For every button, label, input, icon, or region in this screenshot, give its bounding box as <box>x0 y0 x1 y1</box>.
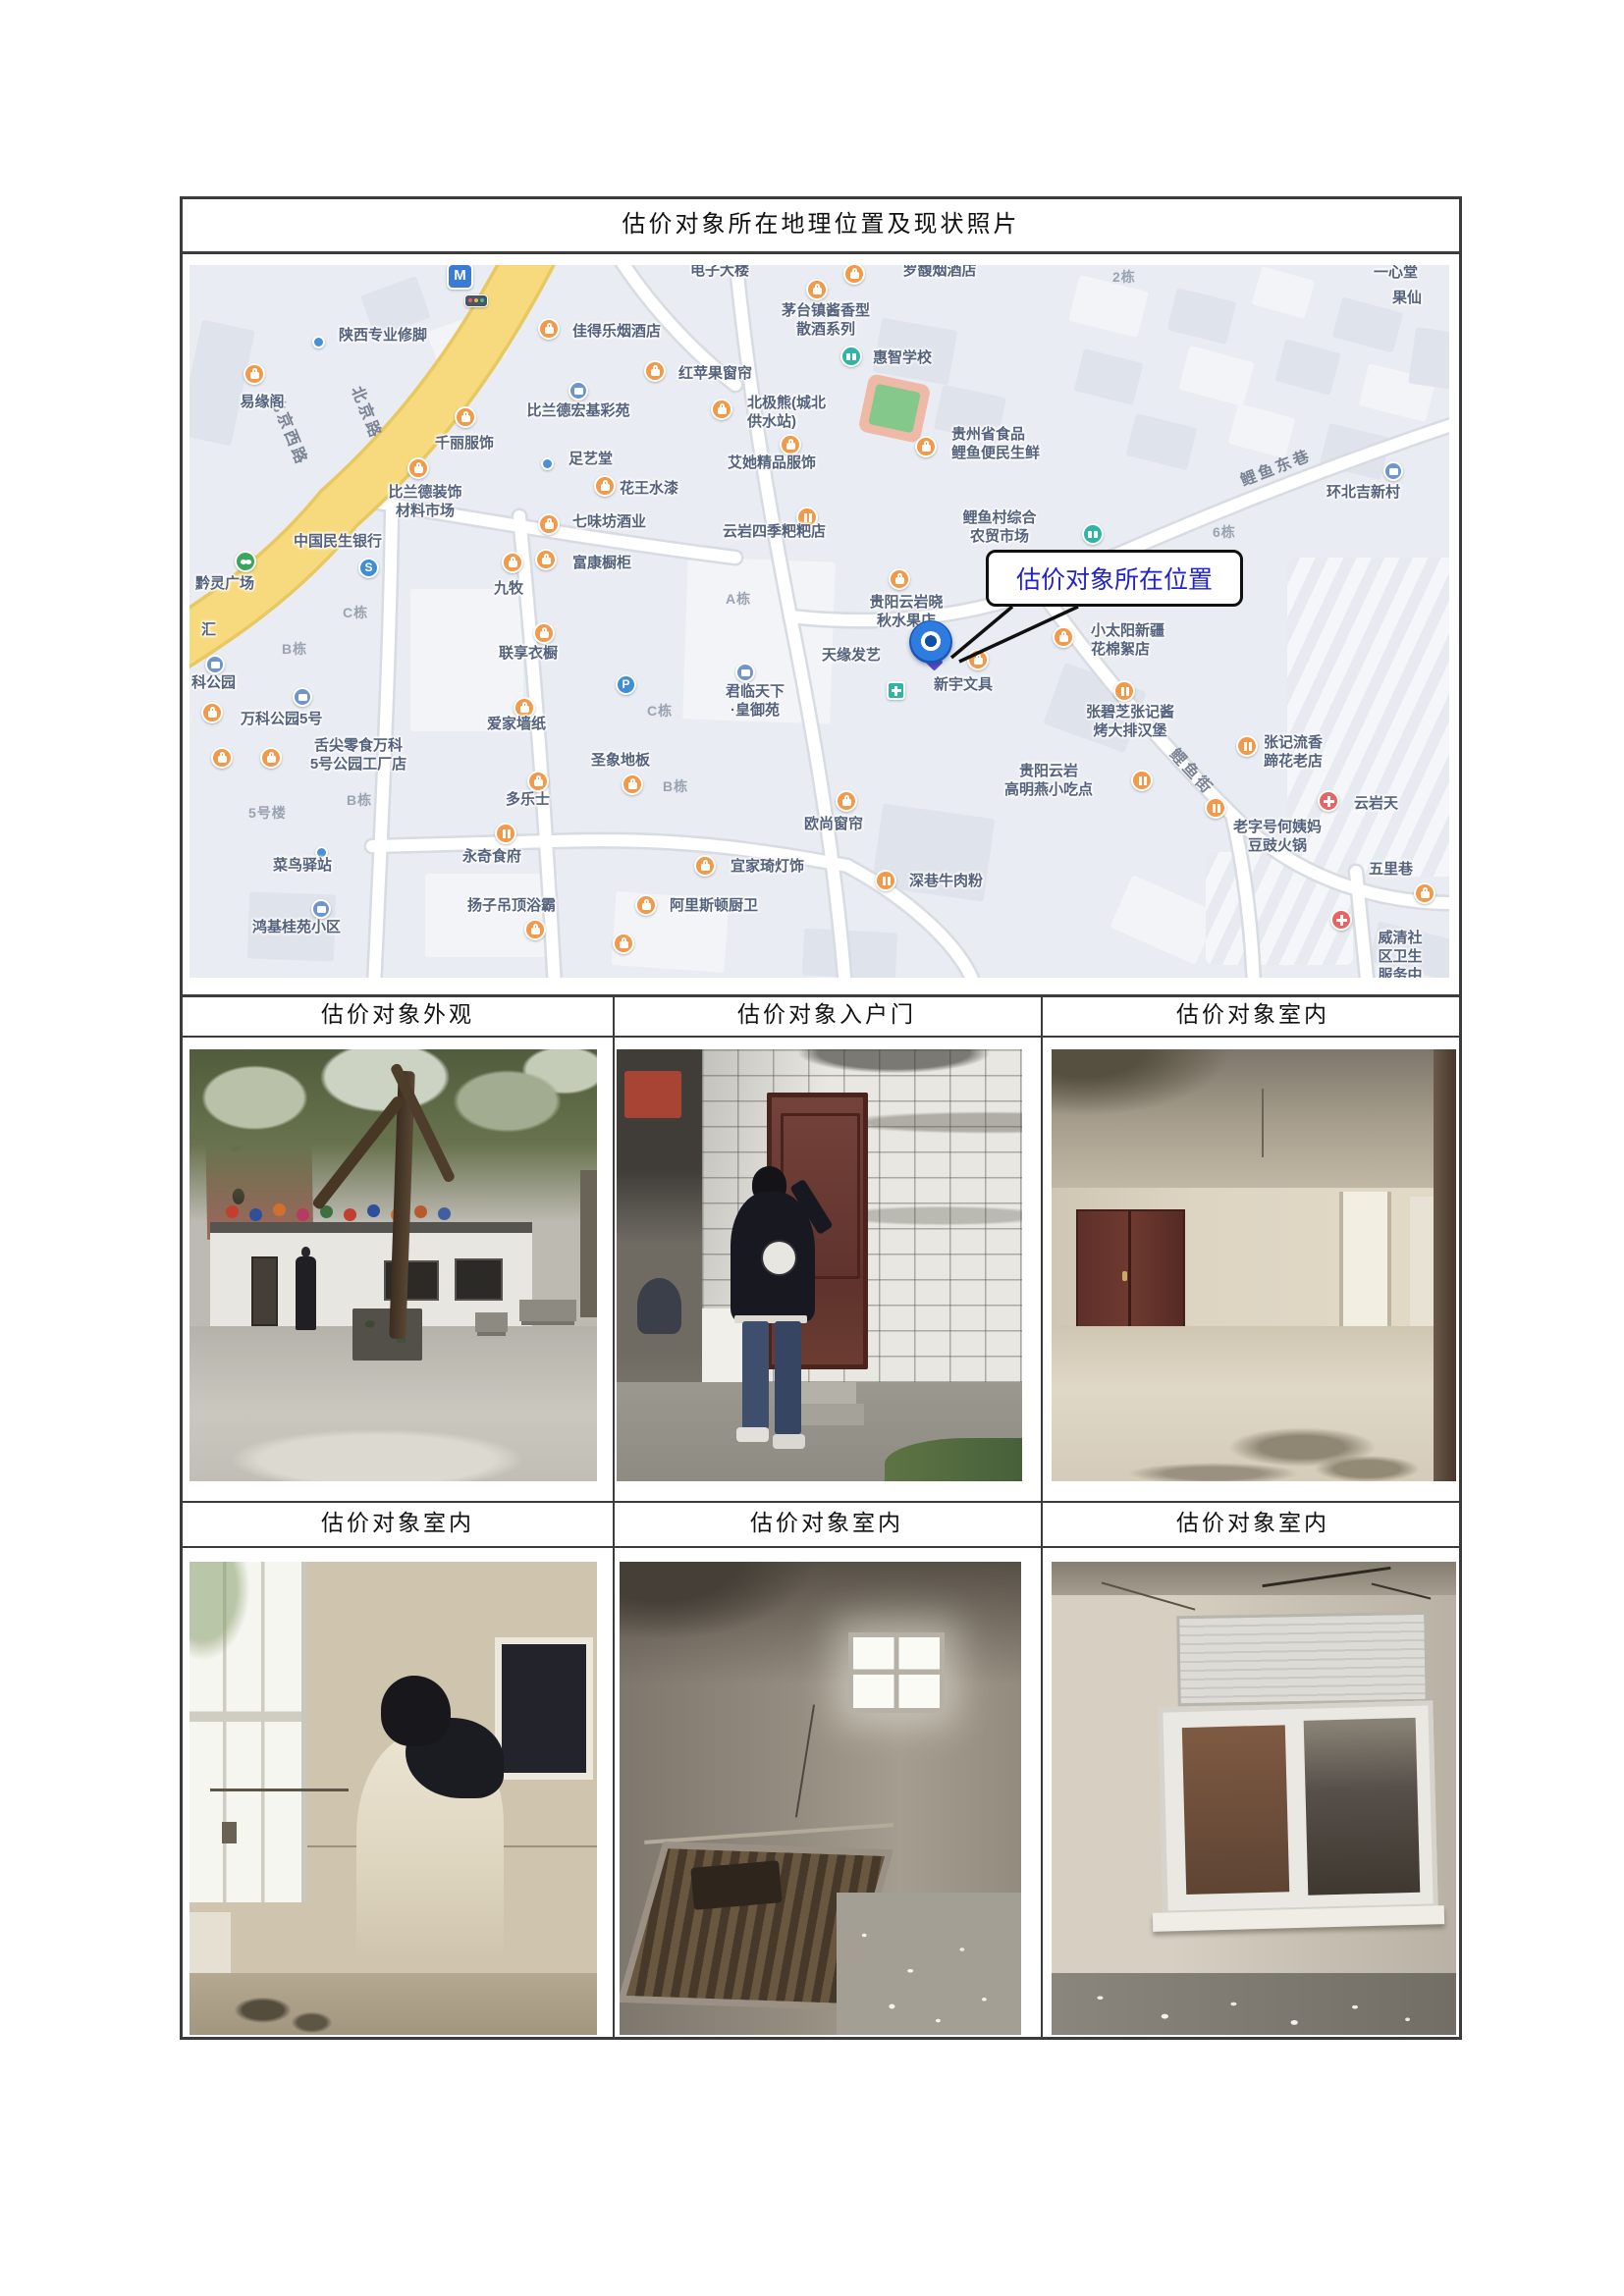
page-title: 估价对象所在地理位置及现状照片 <box>183 199 1459 251</box>
stone-bench <box>519 1300 576 1321</box>
photo-interior-1 <box>1052 1049 1456 1481</box>
ceiling <box>1052 1049 1456 1188</box>
divider <box>613 994 615 2037</box>
red-wardrobe <box>1076 1209 1185 1343</box>
debris-objects <box>690 1861 782 1911</box>
photo-entrance-door <box>617 1049 1022 1481</box>
column-header: 估价对象室内 <box>1041 1501 1465 1546</box>
doorway <box>1410 1197 1436 1326</box>
column-header: 估价对象室内 <box>1041 994 1465 1036</box>
wall-pipe <box>210 1789 349 1791</box>
divider <box>183 251 1459 254</box>
stone-bench <box>475 1312 508 1332</box>
window-pane <box>1304 1718 1420 1896</box>
person-figure <box>296 1256 316 1330</box>
column-header: 估价对象室内 <box>183 1501 613 1546</box>
photo-interior-2 <box>189 1562 597 2035</box>
window <box>1159 1700 1439 1915</box>
divider <box>1041 994 1043 2037</box>
jacket-emblem <box>761 1240 797 1276</box>
column-header: 估价对象外观 <box>183 994 613 1036</box>
photo-table: 估价对象所在地理位置及现状照片 <box>180 196 1462 2040</box>
divider <box>183 1036 1459 1038</box>
dark-ceiling <box>620 1562 1021 1684</box>
floor <box>189 1973 597 2035</box>
window <box>189 1562 307 1902</box>
window-pane <box>1182 1725 1290 1894</box>
small-window <box>848 1632 945 1713</box>
crouching-person <box>637 1278 681 1334</box>
debris-floor <box>837 1893 1021 2035</box>
divider <box>183 1546 1459 1548</box>
person-leg <box>742 1321 769 1429</box>
photo-interior-4 <box>1052 1562 1456 2035</box>
wall-socket <box>222 1822 237 1843</box>
fence <box>580 1170 597 1317</box>
location-map-image: 陕西专业修脚易缘阁佳得乐烟酒店比兰德宏基彩苑千丽服饰比兰德装饰 材料市场足艺堂花… <box>189 265 1449 978</box>
hanging-wire <box>1262 1089 1264 1157</box>
roller-shutter <box>1176 1612 1429 1706</box>
column-header: 估价对象室内 <box>613 1501 1041 1546</box>
tile-floor <box>1052 1326 1456 1481</box>
tree-planter <box>352 1308 422 1361</box>
house-window <box>455 1258 503 1302</box>
person-shoe <box>773 1434 805 1449</box>
photo-exterior <box>189 1049 597 1481</box>
red-object <box>624 1071 681 1118</box>
doorway <box>1339 1192 1392 1325</box>
location-callout: 估价对象所在位置 <box>986 550 1243 607</box>
person-leg <box>775 1321 801 1433</box>
callout-pointer <box>189 265 1449 978</box>
house-door <box>251 1256 277 1326</box>
debris-floor <box>1052 1973 1456 2035</box>
column-header: 估价对象入户门 <box>613 994 1041 1036</box>
person-shoe <box>736 1427 769 1442</box>
photo-interior-3 <box>620 1562 1021 2035</box>
person-head <box>381 1676 451 1746</box>
dark-board <box>495 1637 593 1780</box>
wall-fixture <box>189 1912 231 1974</box>
report-page: 估价对象所在地理位置及现状照片 <box>0 0 1624 2296</box>
door-frame-edge <box>1434 1049 1456 1481</box>
